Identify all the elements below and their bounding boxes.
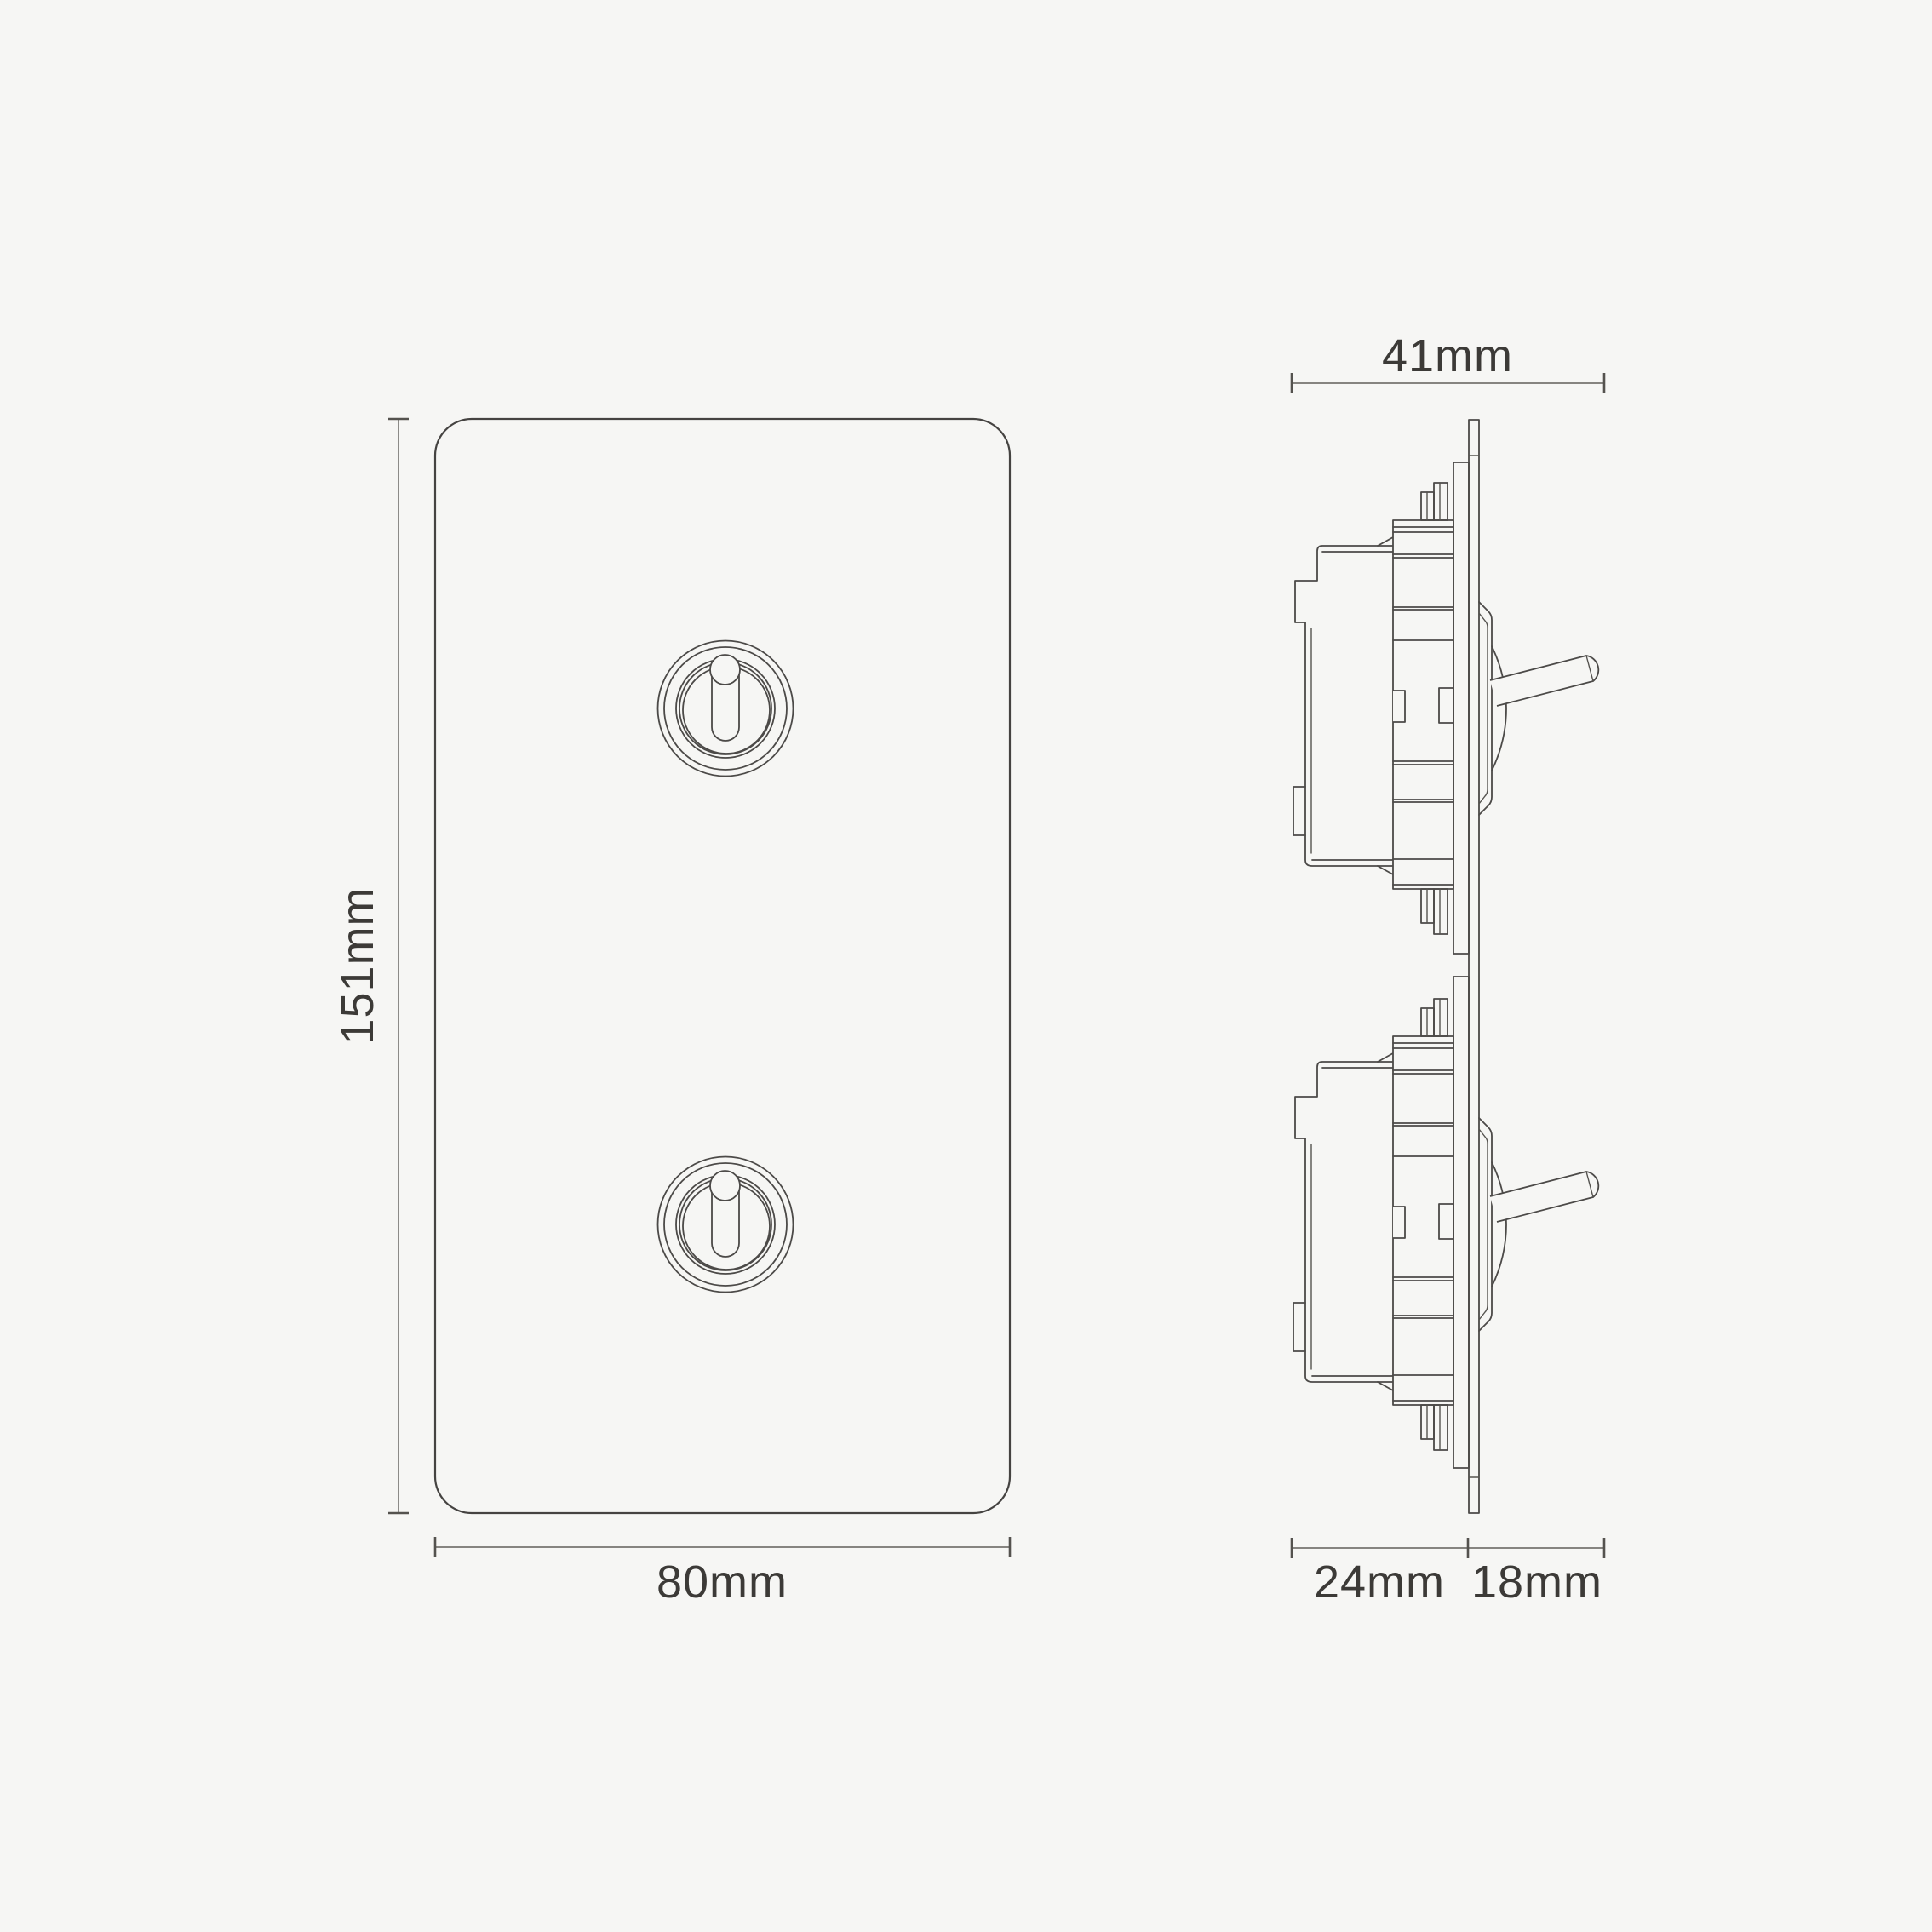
dimension-drawing-canvas: 41mm 151mm 80mm 24mm 18mm [0,0,1932,1932]
page-background [0,0,1932,1932]
dimension-label-80mm: 80mm [656,1556,788,1608]
dimension-label-41mm: 41mm [1382,330,1513,381]
dimension-label-151mm: 151mm [332,886,383,1044]
dimension-label-18mm: 18mm [1471,1556,1602,1608]
switch-dimension-diagram: 41mm 151mm 80mm 24mm 18mm [0,0,1932,1932]
dimension-label-24mm: 24mm [1314,1556,1445,1608]
